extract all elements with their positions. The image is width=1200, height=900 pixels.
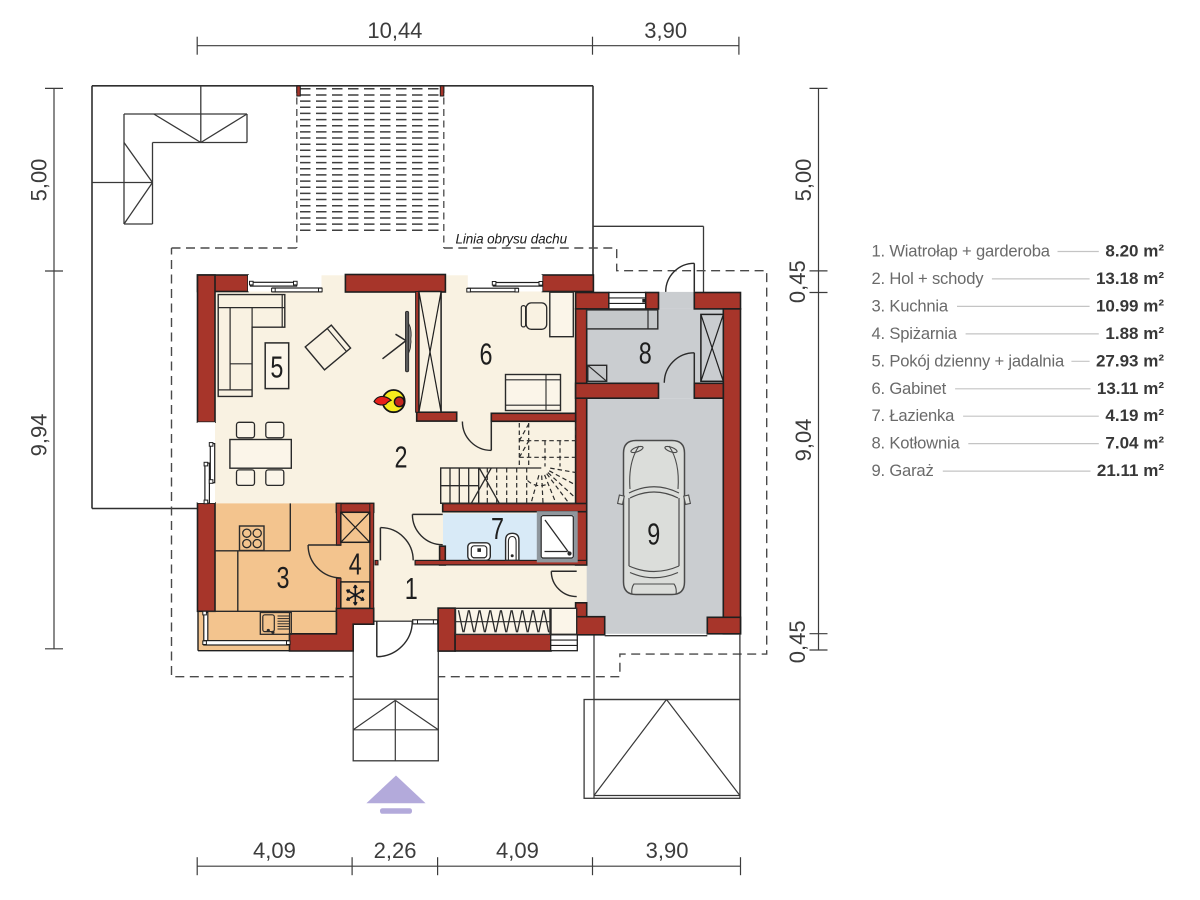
svg-text:5,00: 5,00 [27,159,52,202]
svg-text:7. Łazienka: 7. Łazienka [872,406,956,425]
svg-text:5,00: 5,00 [791,159,816,202]
svg-text:2: 2 [395,440,408,475]
svg-text:3: 3 [277,560,290,595]
svg-text:7.04 m²: 7.04 m² [1105,434,1164,453]
svg-text:2. Hol + schody: 2. Hol + schody [872,269,985,288]
svg-text:4,09: 4,09 [496,838,539,863]
svg-text:1. Wiatrołap + garderoba: 1. Wiatrołap + garderoba [872,242,1051,261]
svg-text:5. Pokój dzienny + jadalnia: 5. Pokój dzienny + jadalnia [872,351,1065,370]
svg-text:3,90: 3,90 [644,18,687,43]
svg-text:9. Garaż: 9. Garaż [872,461,934,480]
svg-text:8. Kotłownia: 8. Kotłownia [872,434,961,453]
svg-text:9: 9 [647,516,660,551]
svg-text:8.20 m²: 8.20 m² [1105,242,1164,261]
svg-text:1: 1 [405,571,418,606]
svg-text:8: 8 [639,336,652,371]
svg-text:Linia obrysu dachu: Linia obrysu dachu [455,232,567,247]
svg-text:10.99 m²: 10.99 m² [1096,296,1164,315]
svg-text:2,26: 2,26 [374,838,417,863]
svg-text:9,04: 9,04 [791,419,816,462]
svg-text:27.93 m²: 27.93 m² [1096,351,1164,370]
svg-text:6. Gabinet: 6. Gabinet [872,379,947,398]
svg-text:6: 6 [480,336,493,371]
svg-text:3,90: 3,90 [646,838,689,863]
svg-text:13.18 m²: 13.18 m² [1096,269,1164,288]
svg-text:21.11 m²: 21.11 m² [1097,461,1164,480]
svg-text:0,45: 0,45 [785,260,810,303]
svg-text:10,44: 10,44 [367,18,422,43]
svg-text:4. Spiżarnia: 4. Spiżarnia [872,324,958,343]
svg-text:4: 4 [349,547,362,582]
svg-text:4.19 m²: 4.19 m² [1105,406,1164,425]
svg-text:3. Kuchnia: 3. Kuchnia [872,296,949,315]
svg-text:0,45: 0,45 [785,620,810,663]
svg-text:9,94: 9,94 [27,414,52,457]
svg-text:1.88 m²: 1.88 m² [1105,324,1164,343]
svg-text:7: 7 [491,511,504,546]
svg-text:13.11 m²: 13.11 m² [1097,379,1164,398]
svg-text:4,09: 4,09 [253,838,296,863]
svg-text:5: 5 [270,350,283,385]
